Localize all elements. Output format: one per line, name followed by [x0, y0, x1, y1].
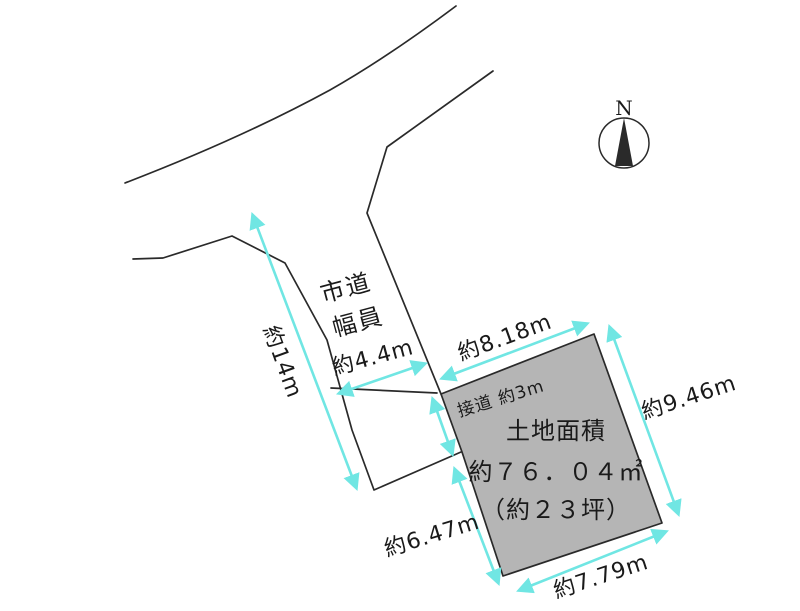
north-label: N: [615, 96, 633, 120]
site-plan-diagram: 市道 幅員 約4.4m 約14m 接道 約3m 約8.18m 約9.46m 約6…: [0, 0, 800, 611]
diagram-background: [0, 0, 800, 611]
parcel-title-label: 土地面積: [506, 417, 606, 445]
parcel-area-sqm-label: 約７６．０４㎡: [469, 458, 644, 486]
site-plan-canvas: 市道 幅員 約4.4m 約14m 接道 約3m 約8.18m 約9.46m 約6…: [0, 0, 800, 611]
parcel-area-tsubo-label: （約２３坪）: [481, 496, 631, 524]
